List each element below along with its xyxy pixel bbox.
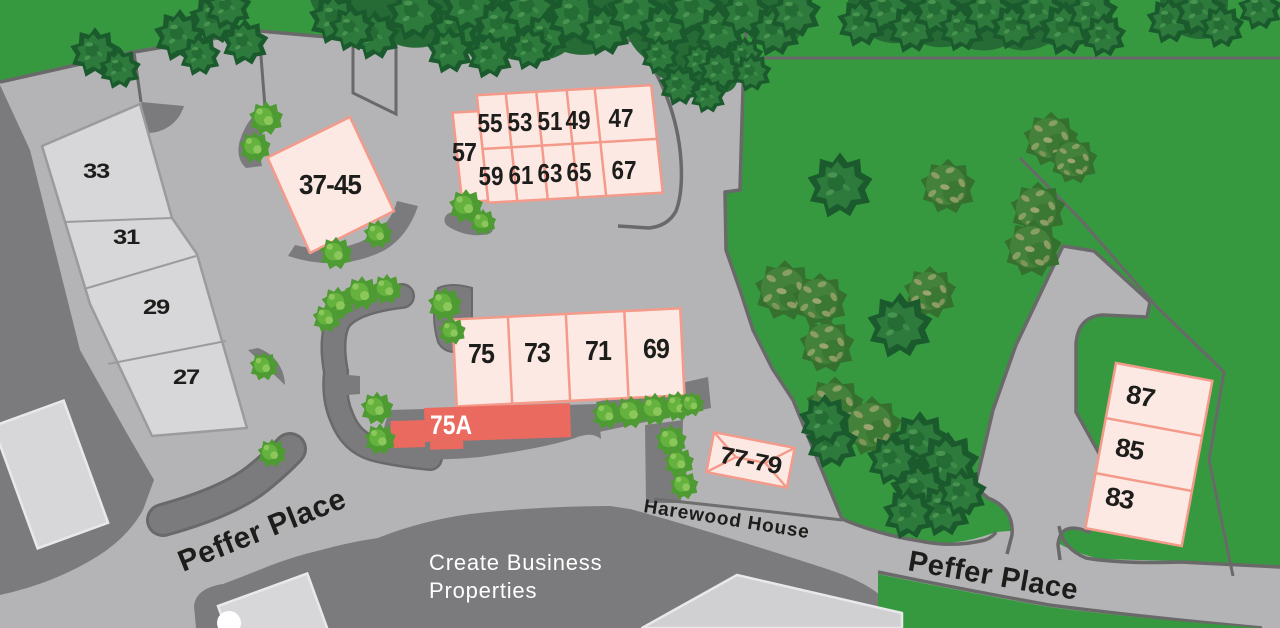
svg-text:49: 49 — [566, 105, 591, 135]
svg-text:65: 65 — [567, 157, 592, 187]
svg-text:57: 57 — [452, 137, 476, 167]
svg-text:63: 63 — [538, 158, 563, 188]
svg-text:59: 59 — [479, 161, 504, 191]
svg-text:Create Business: Create Business — [429, 550, 602, 575]
svg-text:71: 71 — [585, 335, 611, 366]
svg-text:51: 51 — [538, 106, 563, 136]
svg-text:55: 55 — [478, 108, 503, 138]
svg-text:33: 33 — [83, 160, 109, 183]
svg-text:29: 29 — [143, 296, 169, 319]
svg-text:73: 73 — [524, 337, 550, 368]
svg-text:75A: 75A — [430, 410, 472, 440]
svg-text:75: 75 — [468, 338, 494, 369]
svg-text:47: 47 — [609, 103, 634, 133]
svg-text:53: 53 — [508, 107, 533, 137]
svg-text:37-45: 37-45 — [299, 169, 361, 200]
svg-text:27: 27 — [173, 366, 199, 389]
svg-text:67: 67 — [612, 155, 637, 185]
svg-text:31: 31 — [113, 226, 141, 249]
svg-text:Properties: Properties — [429, 578, 537, 603]
svg-text:69: 69 — [643, 333, 669, 364]
svg-text:61: 61 — [509, 160, 534, 190]
